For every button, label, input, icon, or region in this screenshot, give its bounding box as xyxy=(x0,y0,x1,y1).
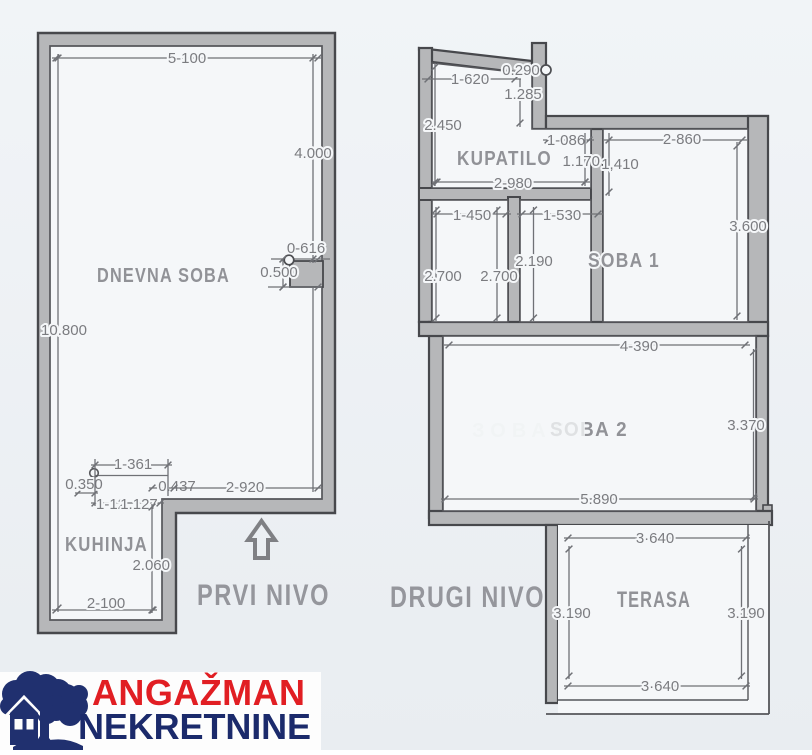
svg-text:DNEVNA SOBA: DNEVNA SOBA xyxy=(97,265,230,287)
svg-text:PRVI NIVO: PRVI NIVO xyxy=(197,579,330,612)
svg-text:NEKRETNINE: NEKRETNINE xyxy=(78,706,311,747)
svg-text:3.600: 3.600 xyxy=(729,218,767,235)
svg-text:3.190: 3.190 xyxy=(553,605,591,622)
svg-text:2-980: 2-980 xyxy=(494,175,532,192)
svg-text:1-530: 1-530 xyxy=(543,207,581,224)
svg-text:2.700: 2.700 xyxy=(424,268,462,285)
svg-text:1-450: 1-450 xyxy=(453,207,491,224)
svg-text:3.370: 3.370 xyxy=(727,417,765,434)
svg-text:2-860: 2-860 xyxy=(663,131,701,148)
svg-text:1.170: 1.170 xyxy=(562,153,600,170)
svg-text:0.290: 0.290 xyxy=(502,62,540,79)
svg-text:DRUGI NIVO: DRUGI NIVO xyxy=(390,581,545,614)
svg-text:4.000: 4.000 xyxy=(294,145,332,162)
svg-text:2-920: 2-920 xyxy=(226,479,264,496)
svg-text:TERASA: TERASA xyxy=(617,587,691,612)
svg-text:2.190: 2.190 xyxy=(515,253,553,270)
svg-text:2-100: 2-100 xyxy=(87,595,125,612)
svg-text:2.450: 2.450 xyxy=(424,117,462,134)
svg-text:0.500: 0.500 xyxy=(260,264,298,281)
svg-text:1,410: 1,410 xyxy=(601,156,639,173)
svg-text:0.437: 0.437 xyxy=(158,478,196,495)
svg-text:5-100: 5-100 xyxy=(168,50,206,67)
svg-text:2.700: 2.700 xyxy=(480,268,518,285)
svg-text:KUHINJA: KUHINJA xyxy=(65,534,148,556)
svg-text:3·640: 3·640 xyxy=(641,678,679,695)
svg-text:2.060: 2.060 xyxy=(132,557,170,574)
svg-text:1.285: 1.285 xyxy=(504,86,542,103)
svg-text:0.350: 0.350 xyxy=(65,476,103,493)
svg-text:3·640: 3·640 xyxy=(636,530,674,547)
svg-text:4-390: 4-390 xyxy=(620,338,658,355)
svg-text:10.800: 10.800 xyxy=(41,322,87,339)
svg-text:1-361: 1-361 xyxy=(114,456,152,473)
svg-text:KUPATILO: KUPATILO xyxy=(457,148,552,170)
svg-text:SOBA 1: SOBA 1 xyxy=(588,250,660,272)
svg-text:0-616: 0-616 xyxy=(287,240,325,257)
svg-text:1-086: 1-086 xyxy=(547,132,585,149)
svg-text:3.190: 3.190 xyxy=(727,605,765,622)
svg-text:5.890: 5.890 xyxy=(580,491,618,508)
svg-text:1-620: 1-620 xyxy=(451,71,489,88)
